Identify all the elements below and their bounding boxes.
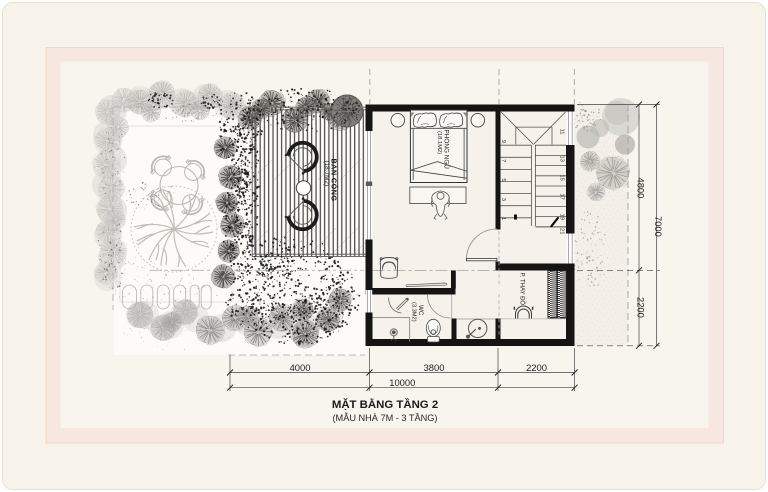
svg-text:7000: 7000	[653, 216, 664, 237]
svg-text:(18.7M2): (18.7M2)	[323, 161, 330, 187]
svg-text:PHÒNG NGỦ: PHÒNG NGỦ	[443, 130, 452, 170]
svg-text:21: 21	[559, 228, 565, 234]
svg-text:19: 19	[559, 214, 565, 220]
svg-text:5: 5	[500, 178, 506, 181]
svg-text:BAN CÔNG: BAN CÔNG	[330, 159, 339, 202]
svg-text:3800: 3800	[424, 362, 445, 373]
svg-text:13: 13	[559, 155, 565, 161]
svg-text:2200: 2200	[635, 297, 646, 318]
svg-text:(MẪU NHÀ 7M - 3 TẦNG): (MẪU NHÀ 7M - 3 TẦNG)	[333, 412, 438, 423]
svg-text:P. THAY ĐỒ: P. THAY ĐỒ	[518, 273, 525, 306]
svg-text:4000: 4000	[290, 362, 311, 373]
svg-text:17: 17	[559, 193, 565, 199]
svg-text:(18.1M2): (18.1M2)	[436, 131, 442, 154]
svg-text:1: 1	[500, 217, 506, 220]
svg-text:2200: 2200	[526, 362, 547, 373]
svg-text:9: 9	[500, 140, 506, 143]
svg-text:10000: 10000	[389, 377, 415, 388]
svg-text:4800: 4800	[635, 178, 646, 199]
svg-text:3: 3	[500, 198, 506, 201]
svg-text:7: 7	[500, 159, 506, 162]
svg-text:11: 11	[559, 129, 565, 135]
svg-text:MẶT BẰNG TẦNG 2: MẶT BẰNG TẦNG 2	[332, 398, 438, 411]
svg-text:WC: WC	[417, 305, 424, 316]
svg-text:(3.3M2): (3.3M2)	[410, 302, 416, 322]
svg-text:15: 15	[559, 174, 565, 180]
